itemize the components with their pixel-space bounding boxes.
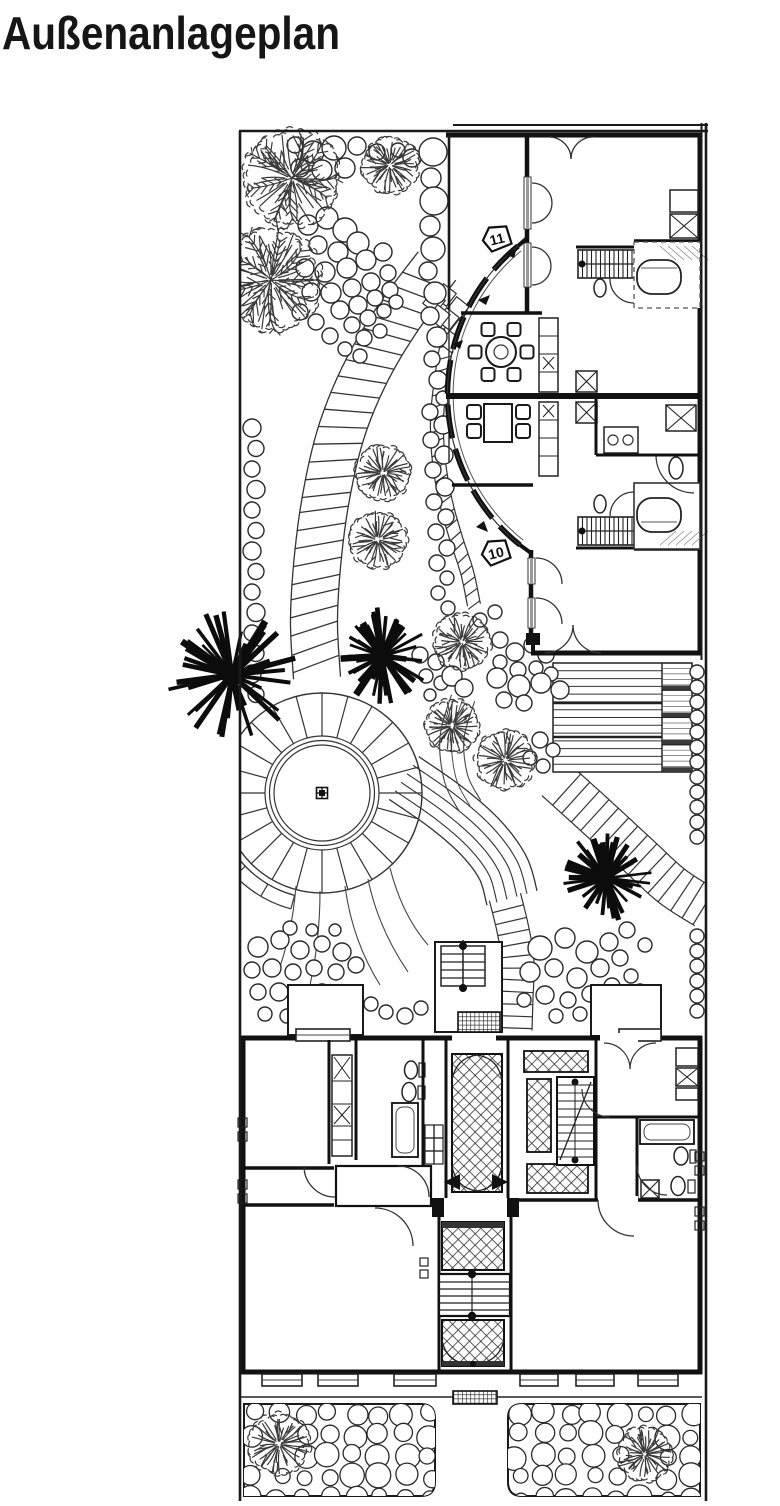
svg-text:Außenanlageplan: Außenanlageplan <box>2 7 340 59</box>
